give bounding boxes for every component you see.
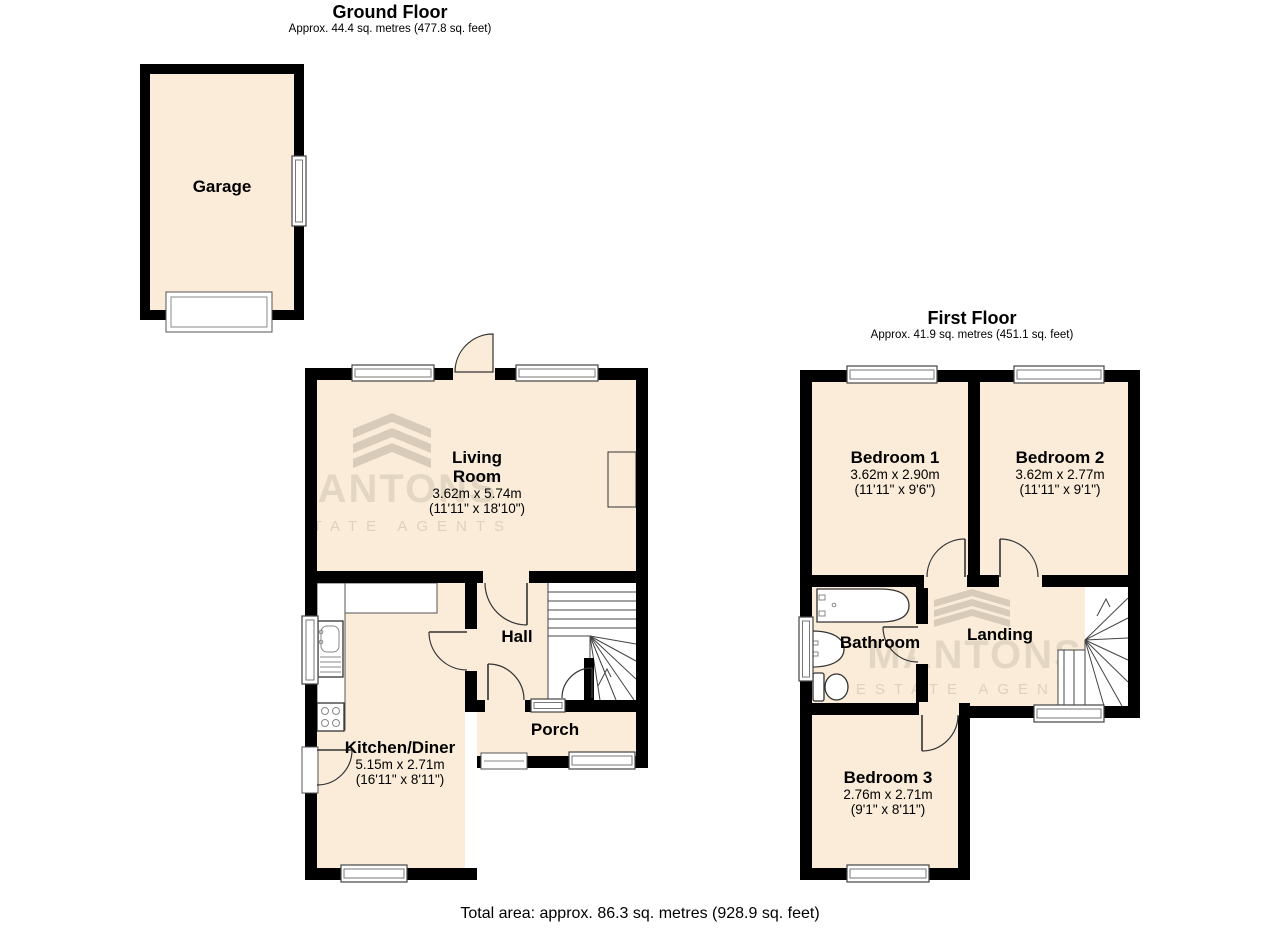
kitchen-exterior-door-icon (302, 747, 318, 793)
garage-structure (140, 64, 306, 332)
bedroom2-label: Bedroom 2 3.62m x 2.77m (11'11" x 9'1") (980, 448, 1140, 497)
bedroom1-label: Bedroom 1 3.62m x 2.90m (11'11" x 9'6") (815, 448, 975, 497)
kitchen-hob-icon (317, 703, 344, 731)
porch-label: Porch (495, 720, 615, 739)
bedroom3-window-icon (847, 865, 929, 882)
first-floor-subtitle: Approx. 41.9 sq. metres (451.1 sq. feet) (822, 329, 1122, 342)
bathroom-label: Bathroom (820, 633, 940, 652)
kitchen-diner-name: Kitchen/Diner (320, 738, 480, 757)
toilet-icon (813, 673, 848, 701)
bedroom2-name: Bedroom 2 (980, 448, 1140, 467)
front-door-icon (481, 753, 527, 769)
living-room-window-icon (352, 365, 434, 381)
living-room-dims-m: 3.62m x 5.74m (417, 486, 537, 501)
landing-label: Landing (940, 625, 1060, 644)
total-area-text: Total area: approx. 86.3 sq. metres (928… (340, 905, 940, 923)
landing-window-icon (1034, 705, 1104, 722)
ground-floor-subtitle: Approx. 44.4 sq. metres (477.8 sq. feet) (240, 23, 540, 36)
kitchen-diner-label: Kitchen/Diner 5.15m x 2.71m (16'11" x 8'… (320, 738, 480, 787)
ground-floor-title-block: Ground Floor Approx. 44.4 sq. metres (47… (240, 3, 540, 36)
ground-floor-title: Ground Floor (240, 3, 540, 23)
porch-window-icon (569, 752, 635, 769)
kitchen-diner-dims-ft: (16'11" x 8'11") (320, 772, 480, 787)
bedroom1-window-icon (847, 366, 937, 383)
bedroom2-dims-m: 3.62m x 2.77m (980, 467, 1140, 482)
first-floor-title: First Floor (822, 309, 1122, 329)
living-room-window2-icon (516, 365, 598, 381)
bedroom3-name: Bedroom 3 (808, 768, 968, 787)
floorplan-canvas: MANTONS ESTATE AGENTS (0, 0, 1280, 931)
kitchen-sink-icon (318, 621, 343, 677)
bedroom3-dims-m: 2.76m x 2.71m (808, 787, 968, 802)
ground-floor-structure: MANTONS ESTATE AGENTS (275, 334, 648, 882)
bedroom3-label: Bedroom 3 2.76m x 2.71m (9'1" x 8'11") (808, 768, 968, 817)
bedroom2-dims-ft: (11'11" x 9'1") (980, 482, 1140, 497)
living-room-name: Living Room (442, 448, 512, 486)
porch-internal-window-icon (531, 699, 565, 712)
bedroom1-dims-ft: (11'11" x 9'6") (815, 482, 975, 497)
garage-door-icon (166, 292, 272, 332)
kitchen-window-bottom-icon (341, 865, 407, 882)
living-room-recess (608, 452, 636, 507)
bedroom2-window-icon (1014, 366, 1104, 383)
living-room-label: Living Room 3.62m x 5.74m (11'11" x 18'1… (417, 448, 537, 516)
living-room-dims-ft: (11'11" x 18'10") (417, 501, 537, 516)
garage-label: Garage (152, 177, 292, 196)
first-floor-title-block: First Floor Approx. 41.9 sq. metres (451… (822, 309, 1122, 342)
bedroom1-name: Bedroom 1 (815, 448, 975, 467)
hall-label: Hall (477, 627, 557, 646)
garage-window-icon (292, 156, 306, 226)
bedroom3-dims-ft: (9'1" x 8'11") (808, 802, 968, 817)
kitchen-diner-dims-m: 5.15m x 2.71m (320, 757, 480, 772)
bathroom-window-icon (799, 617, 813, 681)
bathtub-icon (817, 589, 909, 622)
kitchen-window-left-icon (302, 616, 318, 684)
bedroom1-dims-m: 3.62m x 2.90m (815, 467, 975, 482)
